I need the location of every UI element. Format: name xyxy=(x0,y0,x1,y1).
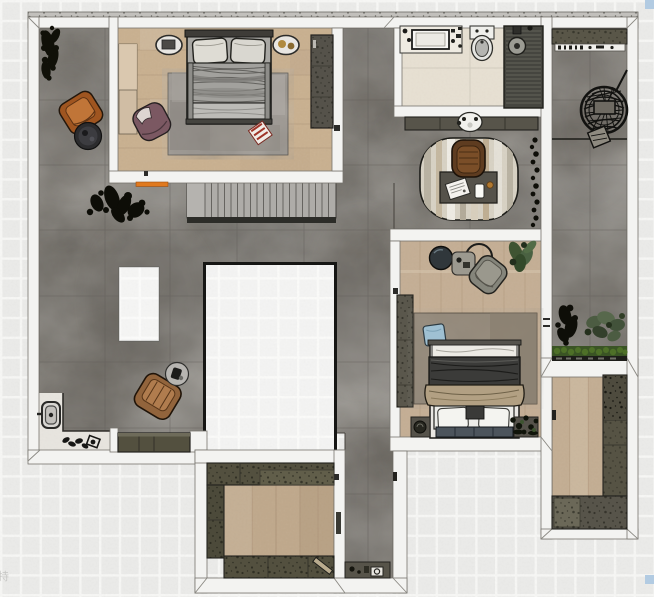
svg-text:持: 持 xyxy=(0,569,9,583)
